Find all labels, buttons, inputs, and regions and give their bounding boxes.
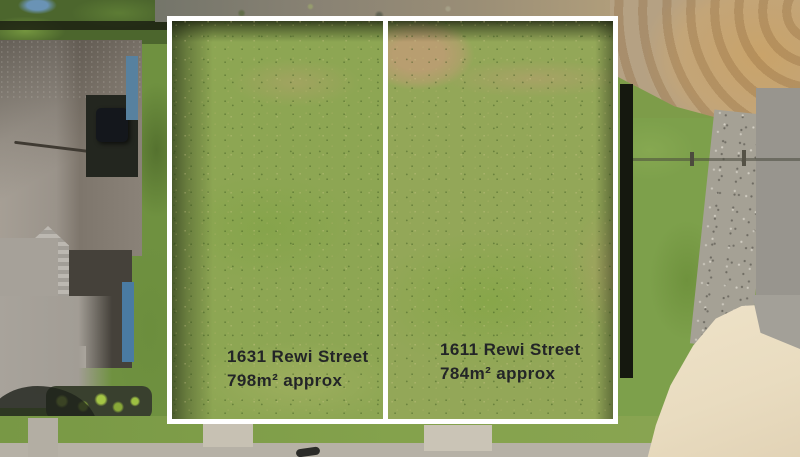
house-blue-wall-lower — [122, 282, 134, 362]
driveway-front — [0, 296, 112, 394]
aerial-photo: 1631 Rewi Street 798m² approx 1611 Rewi … — [0, 0, 800, 457]
side-fence — [620, 84, 633, 378]
house-blue-wall — [126, 56, 138, 120]
wire-fence — [633, 158, 800, 161]
lot-1631-area: 798m² approx — [227, 372, 369, 389]
lot-1611-label: 1611 Rewi Street 784m² approx — [440, 341, 581, 382]
fence-post — [742, 150, 746, 166]
roof-texture — [0, 40, 142, 100]
entry-path — [28, 418, 58, 457]
rear-fence — [0, 21, 168, 30]
lot-1611-area: 784m² approx — [440, 365, 581, 382]
lot-1631-address: 1631 Rewi Street — [227, 348, 369, 365]
lot-1611-address: 1611 Rewi Street — [440, 341, 581, 358]
lot-1631-label: 1631 Rewi Street 798m² approx — [227, 348, 369, 389]
lot-divider-line — [383, 16, 388, 424]
vehicle-crossing-pad — [424, 425, 492, 451]
parked-car — [96, 108, 128, 142]
footpath — [0, 443, 700, 457]
fence-post — [690, 152, 694, 166]
